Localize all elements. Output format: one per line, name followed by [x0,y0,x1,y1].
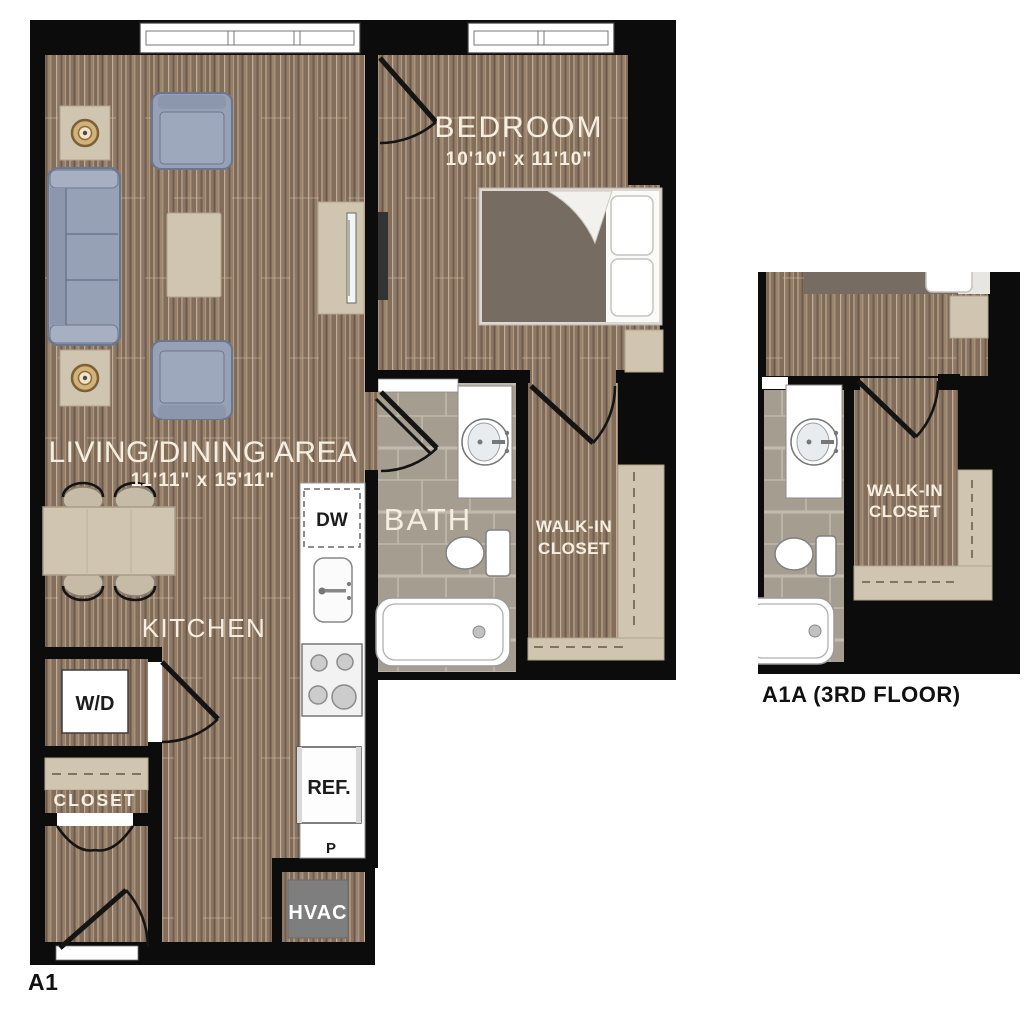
end-table-bottom [60,350,110,406]
hvac-label: HVAC [288,902,347,924]
window-living [140,23,360,53]
closet-doorway-gap [530,370,616,383]
bedroom-dims: 10'10" x 11'10" [446,149,593,170]
inset-walk-in-closet-label-line2: CLOSET [869,502,941,521]
inset-nightstand [950,296,988,338]
inset-pillow [926,252,972,292]
inset-bed [804,252,990,294]
bedroom-corner-column [628,55,676,185]
entry-closet-doorway-gap [57,813,133,826]
tv-bedroom [378,212,388,300]
main-plan-a1: BEDROOM 10'10" x 11'10" LIVING/DINING AR… [30,20,676,965]
dining-table [43,507,175,575]
living-dining-dims: 11'11" x 15'11" [131,470,276,491]
end-table-top [60,106,110,160]
pillow [611,259,653,316]
closet-corner-column [618,383,676,465]
floor-plan-canvas: BEDROOM 10'10" x 11'10" LIVING/DINING AR… [0,0,1024,1024]
walk-in-closet-label-line1: WALK-IN [536,517,612,536]
dishwasher-label: DW [316,510,348,531]
pantry-label: P [326,840,336,857]
floor-plan-page: BEDROOM 10'10" x 11'10" LIVING/DINING AR… [0,0,1024,1024]
inset-bathtub [744,598,834,664]
bath-doorway-gap [365,392,378,470]
refrigerator-label: REF. [307,777,350,799]
inset-bath-doorway-gap [762,377,788,389]
washer-dryer-label: W/D [76,693,115,715]
walk-in-closet-label-line2: CLOSET [538,539,610,558]
bed [479,188,662,325]
bath-label: BATH [384,502,472,537]
stove [302,644,362,716]
pillow [611,196,653,255]
tv-console [318,202,364,314]
bedroom-label: BEDROOM [434,111,603,144]
bath-closet-wall [516,383,528,672]
closet-shelf-bottom [528,638,664,660]
living-bedroom-wall [365,55,378,392]
living-dining-label: LIVING/DINING AREA [48,436,357,469]
coffee-table [167,213,221,297]
kitchen-label: KITCHEN [142,613,267,643]
hvac-left-wall [272,858,282,942]
inset-walk-in-closet-label-line1: WALK-IN [867,481,943,500]
sofa [48,168,120,345]
laundry-doorway-gap [148,662,162,742]
plan-code-a1: A1 [28,969,58,995]
kitchen-right-wall [365,470,378,868]
inset-closet-floor [854,378,958,568]
bath-partition-stub [378,379,458,392]
inset-closet-wall-stub-right [938,374,960,390]
inset-bath-vanity [786,385,842,498]
bath-vanity [458,386,512,498]
entry-closet-label: CLOSET [54,790,137,810]
closet-shelf-right [618,465,664,660]
entry-hall-floor [45,826,148,942]
kitchen-sink [314,558,352,622]
bathtub [376,598,510,666]
inset-plan-a1a: WALK-IN CLOSET [744,252,1020,674]
inset-tub-drain [809,625,821,637]
plan-code-a1a: A1A (3RD FLOOR) [762,682,961,707]
entry-threshold [56,946,138,960]
kitchen-counter [297,483,365,858]
tub-drain [473,626,485,638]
armchair-bottom [152,341,232,419]
window-bedroom [468,23,614,53]
nightstand [625,330,663,372]
armchair-top [152,93,232,169]
